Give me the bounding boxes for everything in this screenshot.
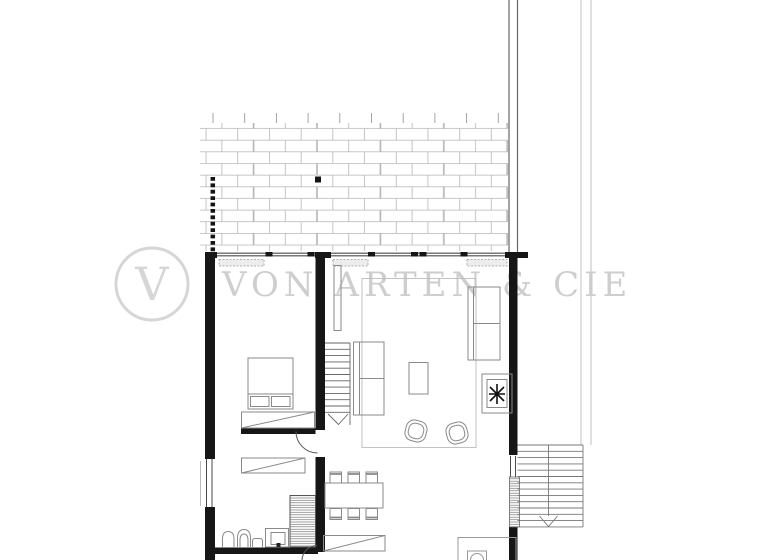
double-bed [248,358,293,409]
floor-plan-canvas: V VON ARTEN & CIE [0,0,768,560]
survey-point-square [315,177,321,183]
washbasin [271,533,285,545]
watermark: V VON ARTEN & CIE [116,248,632,320]
hall-wardrobe-diagonal [242,458,306,473]
sofa-left-cushions [360,342,385,415]
sideboard-diagonal [324,536,386,552]
sill-bar-bedroom [219,260,264,267]
armchair-1 [403,418,429,444]
terrace [200,113,509,252]
ext-stair-down-arrow [540,516,558,527]
shower [290,496,316,548]
wall-right-upper [509,252,518,455]
dining-chairs-bottom [330,509,378,520]
plant-box [482,374,512,413]
bedroom-wardrobe-diagonal [242,412,315,428]
stair-down-arrow [328,414,348,425]
dining-area [324,472,386,551]
utility-box [458,538,516,560]
watermark-logo-letter: V [134,257,169,311]
right-wall-opening [510,456,520,527]
toilet [223,532,235,548]
terrace-brick-ticks [213,113,498,123]
floor-drain [253,539,263,548]
window-left-wall [201,456,216,510]
plant-icon [489,384,505,404]
watermark-brand-text: VON ARTEN & CIE [221,265,632,305]
coffee-table [409,363,428,395]
dining-table [325,483,383,508]
interior-staircase [325,343,350,425]
wall-bedroom-bottom [241,428,316,434]
exterior-staircase [518,445,584,527]
bed-pillow-1 [251,397,270,407]
wall-interior-upper [316,252,326,430]
washbasin-tap [277,543,281,547]
stair-treads [325,343,350,412]
door-arc-hall [296,432,318,454]
bedroom [242,358,315,428]
bidet-inner [240,534,248,547]
guide-lines [509,0,591,445]
top-facade [205,253,517,256]
dining-chairs-top [330,472,378,483]
bathroom [223,458,316,547]
armchair-2 [444,420,470,446]
wall-bottom [205,548,318,555]
ext-stair-treads [518,445,584,527]
bidet [238,530,251,548]
bed-pillow-2 [272,397,291,407]
terrace-brick-paving [200,123,509,251]
floor-plan-page: V VON ARTEN & CIE [0,0,768,560]
wall-left-upper [205,252,215,457]
sill-bar-living-2 [467,260,507,267]
appliance-drum [471,554,484,560]
